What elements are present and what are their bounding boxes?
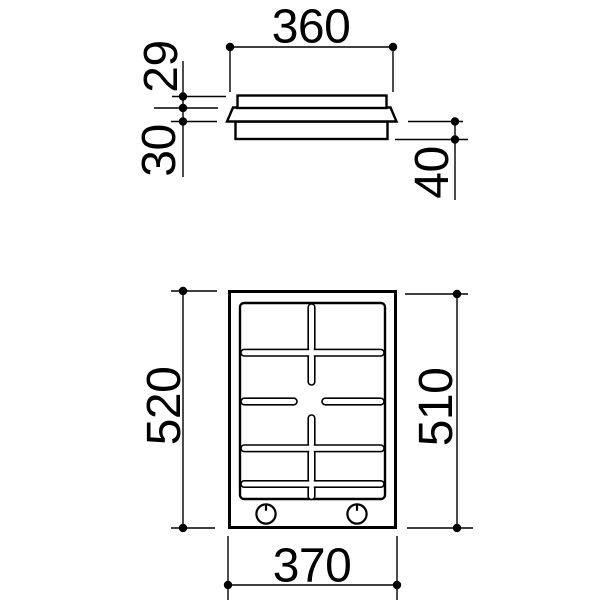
dim-endpoint-dot xyxy=(453,524,461,532)
dimension-40: 40 xyxy=(395,117,468,200)
side-view: 360 29 30 40 xyxy=(133,1,468,201)
dim-endpoint-dot xyxy=(393,581,401,589)
grate-bar-fill xyxy=(309,305,314,384)
dim-label-29: 29 xyxy=(135,40,188,92)
dim-endpoint-dot xyxy=(179,287,187,295)
dim-label-40: 40 xyxy=(406,146,459,198)
hob-dimension-drawing: 360 29 30 40 xyxy=(0,0,600,600)
grate-bar-fill xyxy=(242,446,383,451)
dim-endpoint-dot xyxy=(179,524,187,532)
dim-endpoint-dot xyxy=(451,135,459,143)
dim-endpoint-dot xyxy=(224,581,232,589)
dimension-370: 370 xyxy=(224,536,401,600)
dimension-29-30: 29 30 xyxy=(133,40,226,177)
dim-label-360: 360 xyxy=(272,1,351,54)
dim-endpoint-dot xyxy=(179,104,187,112)
dimension-360: 360 xyxy=(226,1,397,93)
dim-endpoint-dot xyxy=(226,43,234,51)
hob-side-flange xyxy=(227,108,397,122)
hob-side-lower-body xyxy=(236,122,388,140)
dim-label-520: 520 xyxy=(138,367,191,446)
dim-endpoint-dot xyxy=(453,290,461,298)
dim-label-370: 370 xyxy=(273,540,352,593)
grate-bar-h-mid-right xyxy=(322,398,384,405)
hob-side-top-slab xyxy=(238,96,387,109)
grate-bar-fill xyxy=(242,350,383,355)
technical-drawing-canvas: 360 29 30 40 xyxy=(0,0,600,600)
dimension-520: 520 xyxy=(138,287,217,532)
dimension-510: 510 xyxy=(405,290,473,532)
grate-bar-fill xyxy=(242,482,383,486)
dim-label-510: 510 xyxy=(410,368,463,447)
dim-endpoint-dot xyxy=(389,43,397,51)
plan-view: 520 510 370 xyxy=(138,287,473,600)
grate-bar-h-mid-left xyxy=(241,398,297,405)
dim-endpoint-dot xyxy=(451,117,459,125)
dim-label-30: 30 xyxy=(133,124,186,176)
